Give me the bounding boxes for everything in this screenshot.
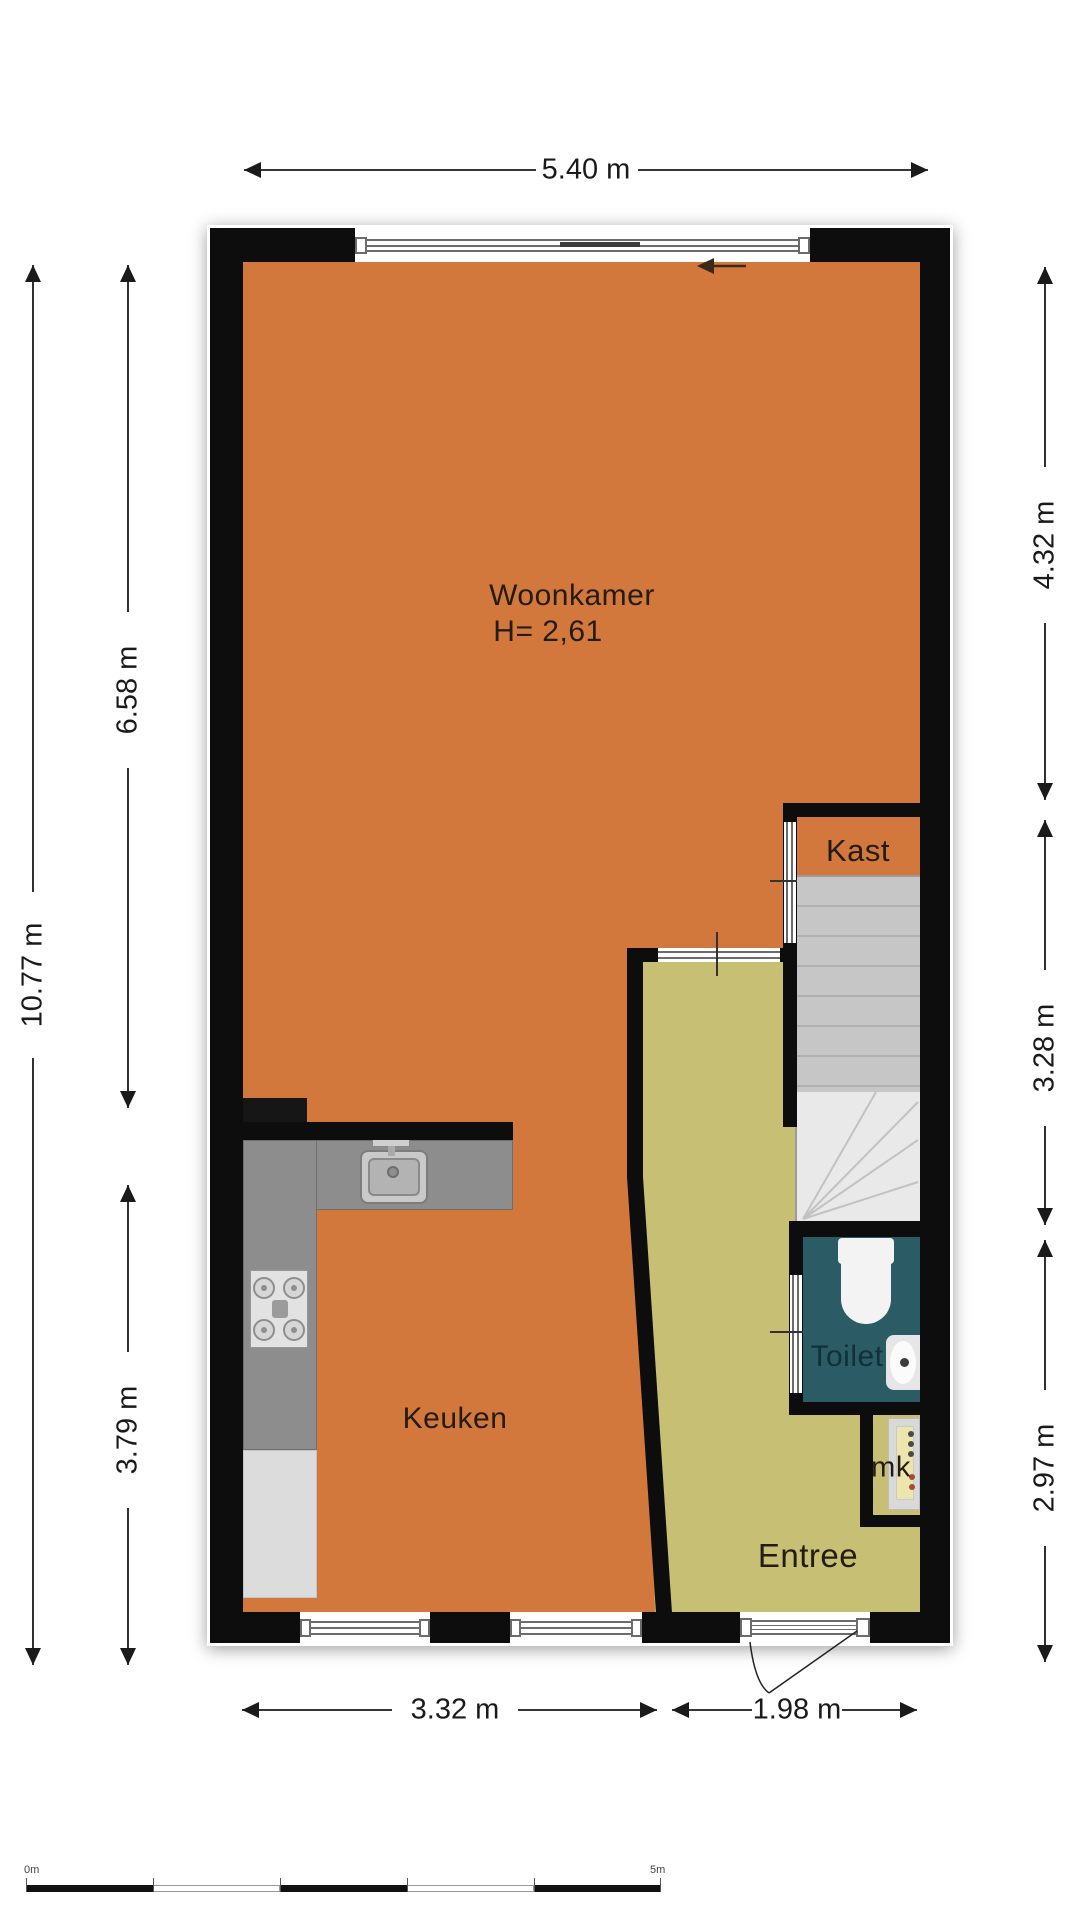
floor-plan-canvas: Woonkamer H= 2,61 Keuken Kast Entree Toi… — [0, 0, 1080, 1920]
label-keuken: Keuken — [403, 1402, 508, 1436]
dim-right-upper: 4.32 m — [1029, 501, 1062, 590]
scale-tick-2 — [280, 1878, 281, 1892]
scale-seg-3 — [280, 1885, 407, 1892]
dim-right-middle: 3.28 m — [1029, 1004, 1062, 1093]
dimension-arrowheads — [25, 162, 1053, 1718]
label-kast: Kast — [826, 833, 890, 869]
label-mk: mk — [871, 1452, 911, 1485]
front-door-swing — [750, 1631, 857, 1693]
scale-tick-3 — [407, 1878, 408, 1892]
scale-tick-0 — [26, 1878, 27, 1892]
annotation-layer — [0, 0, 1080, 1920]
label-woonkamer-height: H= 2,61 — [493, 615, 602, 649]
wall-entree-diagonal — [627, 1177, 672, 1613]
scale-bar — [26, 1885, 661, 1892]
dim-left-total: 10.77 m — [17, 923, 50, 1028]
dim-left-lower: 3.79 m — [112, 1386, 145, 1475]
label-entree: Entree — [758, 1537, 858, 1575]
scale-tick-1 — [153, 1878, 154, 1892]
scale-tick-4 — [534, 1878, 535, 1892]
scale-seg-4 — [407, 1885, 534, 1892]
stairs-winder-lines — [803, 1092, 918, 1219]
scale-seg-1 — [26, 1885, 153, 1892]
scale-tick-5 — [660, 1878, 661, 1892]
dim-top-width: 5.40 m — [542, 154, 631, 187]
dim-bottom-right: 1.98 m — [753, 1694, 842, 1727]
dim-bottom-left: 3.32 m — [411, 1694, 500, 1727]
scale-bar-end-label: 5m — [650, 1864, 665, 1876]
label-toilet: Toilet — [810, 1340, 883, 1374]
dim-left-upper: 6.58 m — [112, 646, 145, 735]
dim-right-lower: 2.97 m — [1029, 1424, 1062, 1513]
label-woonkamer: Woonkamer — [489, 579, 655, 613]
sliding-door-arrow-icon — [697, 258, 746, 274]
scale-bar-start-label: 0m — [24, 1864, 39, 1876]
scale-seg-2 — [153, 1885, 280, 1892]
scale-seg-5 — [534, 1885, 661, 1892]
